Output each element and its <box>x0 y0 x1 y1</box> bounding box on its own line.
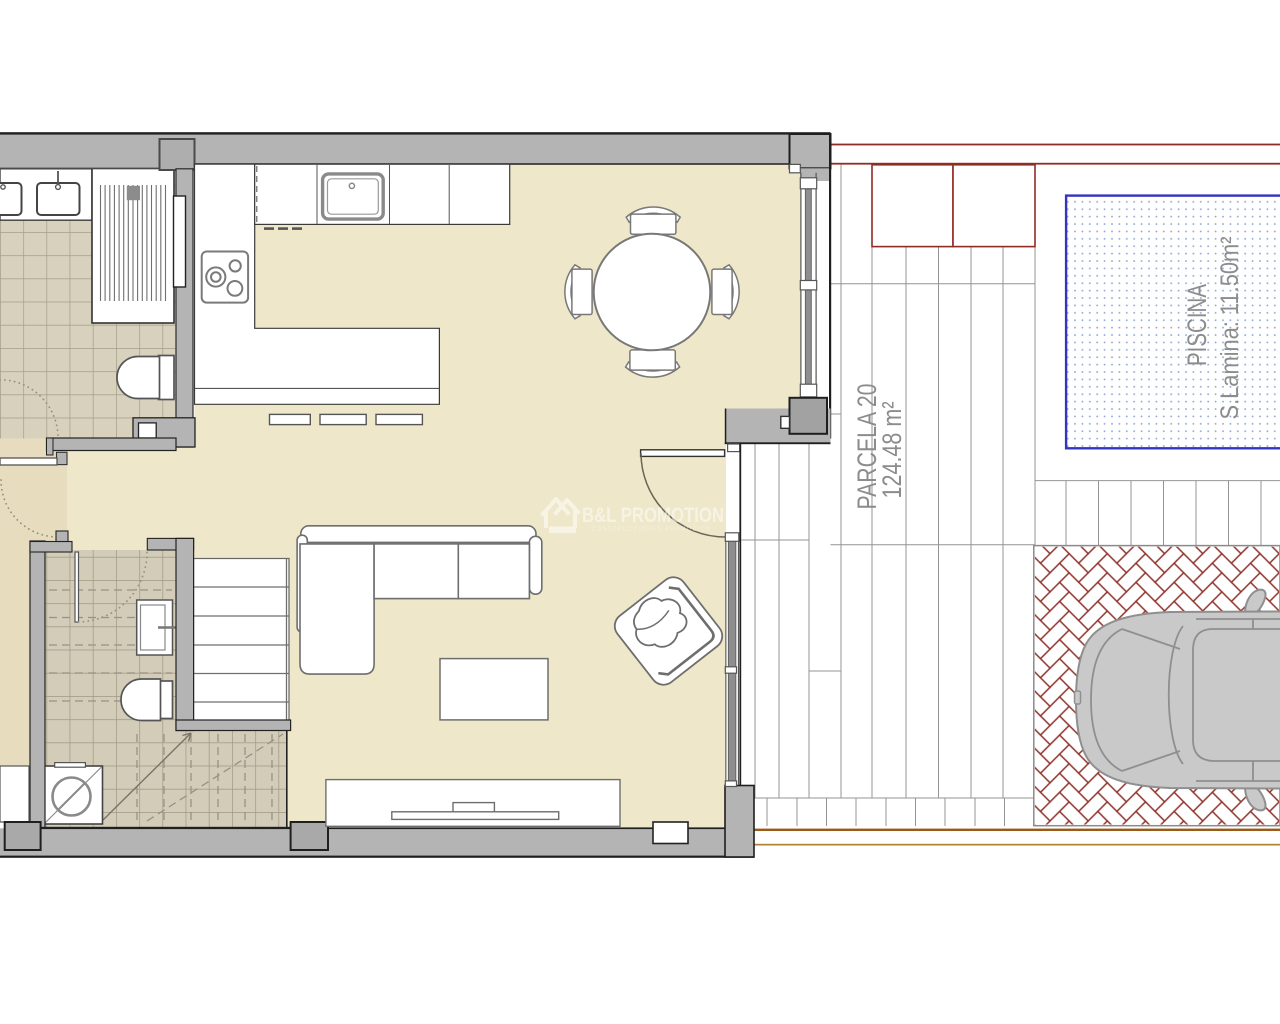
svg-text:124.48 m²: 124.48 m² <box>877 402 907 499</box>
svg-text:S.Lamina: 11.50m²: S.Lamina: 11.50m² <box>1216 237 1244 420</box>
svg-text:C O N S T R U C C I O N E S ·: C O N S T R U C C I O N E S · P R O M O … <box>592 524 710 533</box>
svg-text:PISCINA: PISCINA <box>1182 284 1212 366</box>
